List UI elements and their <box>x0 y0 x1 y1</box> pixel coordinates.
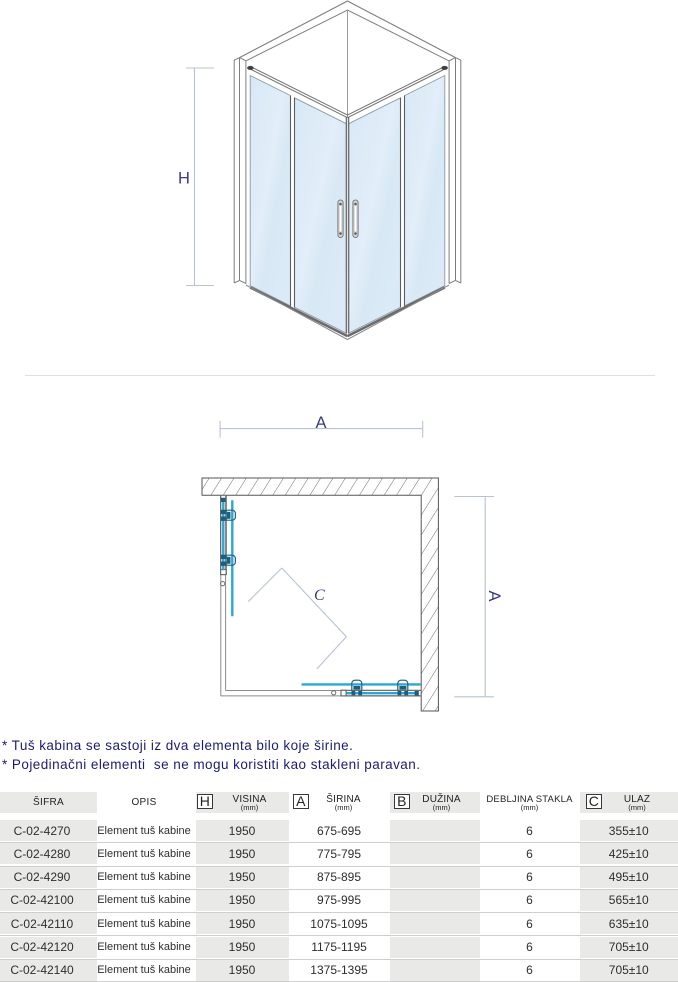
svg-text:A: A <box>316 414 327 432</box>
svg-text:C: C <box>314 587 325 604</box>
svg-text:A: A <box>485 590 503 601</box>
svg-text:H: H <box>178 170 190 188</box>
